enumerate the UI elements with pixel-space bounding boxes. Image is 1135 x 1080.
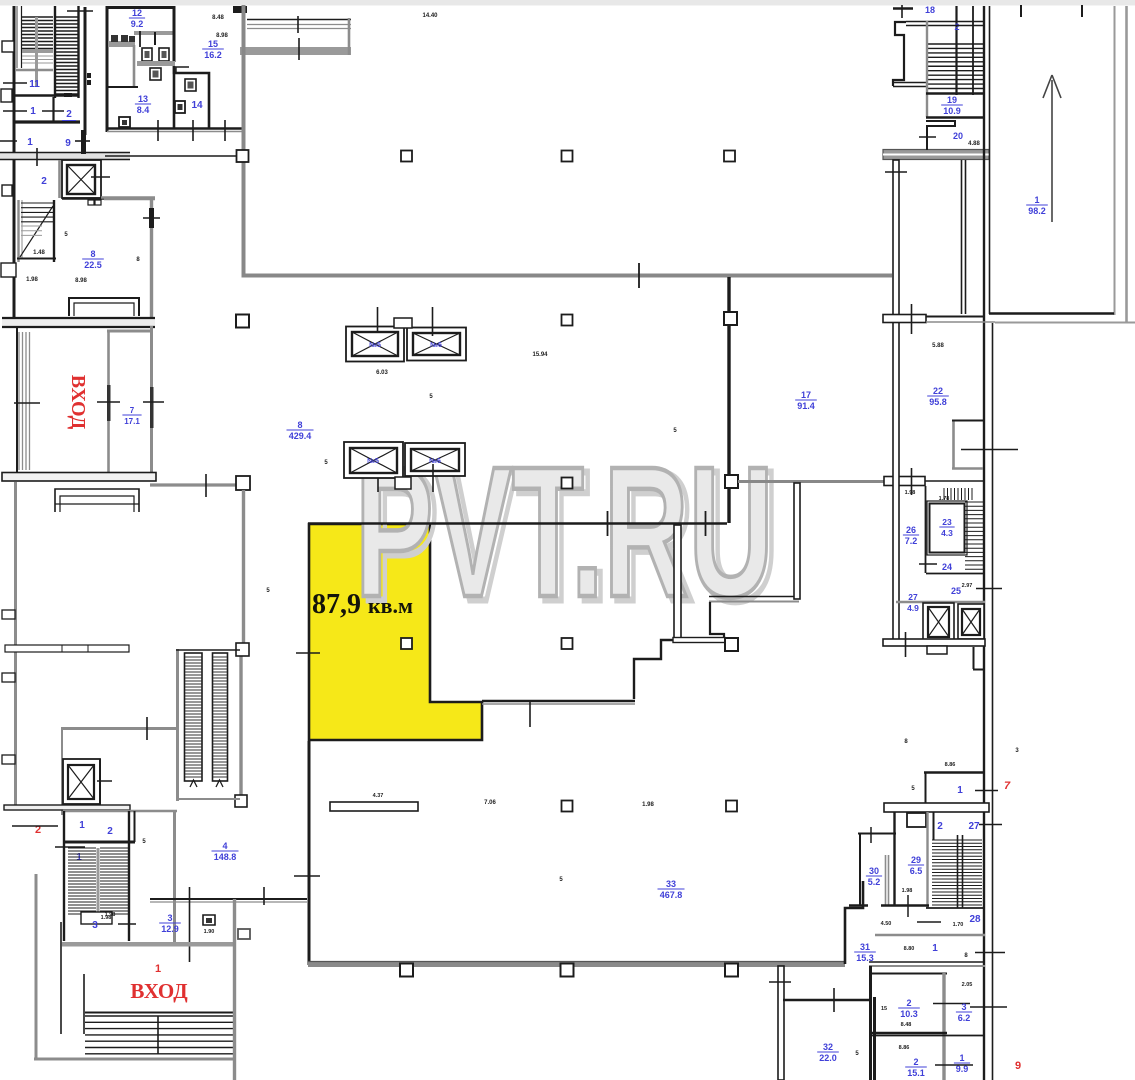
svg-text:9.2: 9.2 (131, 19, 144, 29)
svg-text:33: 33 (666, 879, 676, 889)
svg-text:№6: №6 (430, 341, 442, 349)
svg-text:27: 27 (968, 821, 980, 832)
svg-text:ВХОД: ВХОД (130, 979, 188, 1003)
svg-text:2: 2 (937, 821, 943, 832)
svg-text:16.2: 16.2 (204, 50, 222, 60)
svg-text:1.90: 1.90 (204, 929, 215, 935)
svg-text:91.4: 91.4 (797, 401, 815, 411)
svg-text:15.1: 15.1 (907, 1068, 925, 1078)
svg-text:29: 29 (911, 855, 921, 865)
svg-text:6.2: 6.2 (958, 1013, 971, 1023)
svg-text:1: 1 (1034, 195, 1039, 205)
svg-text:17.1: 17.1 (124, 417, 140, 426)
svg-text:1: 1 (957, 785, 963, 796)
svg-text:27: 27 (908, 592, 918, 602)
svg-text:23: 23 (942, 517, 952, 527)
svg-text:10.9: 10.9 (943, 106, 961, 116)
svg-text:2.97: 2.97 (962, 583, 973, 589)
svg-text:19: 19 (947, 95, 957, 105)
svg-text:6.03: 6.03 (376, 370, 388, 376)
svg-text:9: 9 (65, 138, 71, 149)
svg-text:4.50: 4.50 (881, 921, 892, 927)
svg-text:148.8: 148.8 (214, 852, 237, 862)
svg-text:14.40: 14.40 (422, 13, 438, 19)
svg-text:1.98: 1.98 (26, 277, 38, 283)
svg-text:15: 15 (208, 39, 218, 49)
svg-text:4.37: 4.37 (373, 793, 384, 799)
svg-text:467.8: 467.8 (660, 890, 683, 900)
svg-text:7: 7 (130, 406, 135, 415)
svg-text:25: 25 (951, 586, 961, 596)
svg-text:3: 3 (167, 913, 172, 923)
svg-text:2: 2 (41, 176, 47, 187)
svg-text:12: 12 (132, 8, 142, 18)
svg-text:9: 9 (1015, 1060, 1021, 1072)
svg-text:№5: №5 (369, 341, 381, 349)
svg-text:4.88: 4.88 (968, 141, 980, 147)
svg-text:2: 2 (107, 826, 113, 837)
svg-text:4.3: 4.3 (941, 528, 953, 538)
svg-text:8: 8 (297, 420, 302, 430)
svg-text:4.9: 4.9 (907, 603, 919, 613)
svg-text:1: 1 (27, 137, 33, 148)
svg-text:1: 1 (79, 820, 85, 831)
svg-text:2: 2 (906, 998, 911, 1008)
svg-text:11: 11 (29, 79, 40, 90)
svg-text:8.80: 8.80 (904, 946, 915, 952)
svg-text:7.2: 7.2 (905, 536, 918, 546)
svg-text:22: 22 (933, 386, 943, 396)
svg-text:2: 2 (66, 109, 72, 120)
svg-text:1: 1 (155, 963, 161, 975)
svg-text:18: 18 (925, 5, 935, 15)
svg-text:1: 1 (959, 1053, 964, 1063)
svg-text:13: 13 (138, 94, 148, 104)
svg-text:2: 2 (954, 22, 959, 32)
svg-text:1.98: 1.98 (105, 912, 116, 918)
svg-text:1.98: 1.98 (902, 888, 913, 894)
svg-text:26: 26 (906, 525, 916, 535)
svg-text:3: 3 (92, 920, 98, 931)
svg-text:2: 2 (913, 1057, 918, 1067)
svg-text:8.48: 8.48 (212, 15, 224, 21)
svg-text:1.48: 1.48 (33, 250, 45, 256)
svg-text:15.94: 15.94 (532, 352, 548, 358)
svg-text:24: 24 (942, 562, 952, 572)
svg-text:1: 1 (30, 106, 36, 117)
svg-text:31: 31 (860, 942, 870, 952)
svg-text:87,9 кв.м: 87,9 кв.м (312, 589, 413, 620)
svg-text:5.2: 5.2 (868, 877, 881, 887)
svg-text:4: 4 (222, 841, 227, 851)
svg-text:17: 17 (801, 390, 811, 400)
svg-text:429.4: 429.4 (289, 431, 312, 441)
svg-text:12.9: 12.9 (161, 924, 179, 934)
svg-text:22.0: 22.0 (819, 1053, 837, 1063)
svg-text:1.98: 1.98 (642, 802, 654, 808)
svg-text:8: 8 (90, 249, 95, 259)
svg-text:98.2: 98.2 (1028, 206, 1046, 216)
svg-text:3: 3 (961, 1002, 966, 1012)
svg-text:1.98: 1.98 (905, 490, 916, 496)
svg-text:1.70: 1.70 (953, 922, 964, 928)
svg-text:8.98: 8.98 (75, 278, 87, 284)
svg-text:22.5: 22.5 (84, 260, 102, 270)
svg-text:7.06: 7.06 (484, 800, 496, 806)
svg-text:28: 28 (969, 914, 981, 925)
svg-text:ВХОД: ВХОД (67, 375, 89, 430)
svg-text:10.3: 10.3 (900, 1009, 918, 1019)
svg-text:30: 30 (869, 866, 879, 876)
svg-text:32: 32 (823, 1042, 833, 1052)
svg-text:8.86: 8.86 (945, 762, 956, 768)
svg-text:1: 1 (932, 943, 938, 954)
svg-text:8.98: 8.98 (216, 33, 228, 39)
svg-text:8.4: 8.4 (137, 105, 150, 115)
svg-text:8.86: 8.86 (899, 1045, 910, 1051)
svg-text:№6: №6 (429, 457, 441, 465)
svg-text:8.48: 8.48 (901, 1022, 912, 1028)
svg-text:7: 7 (1004, 780, 1011, 792)
svg-text:95.8: 95.8 (929, 397, 947, 407)
svg-text:6.5: 6.5 (910, 866, 923, 876)
svg-text:15: 15 (881, 1006, 887, 1012)
svg-text:20: 20 (953, 131, 963, 141)
svg-text:5.88: 5.88 (932, 343, 944, 349)
svg-text:№5: №5 (367, 457, 379, 465)
svg-text:15.3: 15.3 (856, 953, 874, 963)
svg-text:14: 14 (191, 100, 203, 111)
svg-text:2.05: 2.05 (962, 982, 973, 988)
